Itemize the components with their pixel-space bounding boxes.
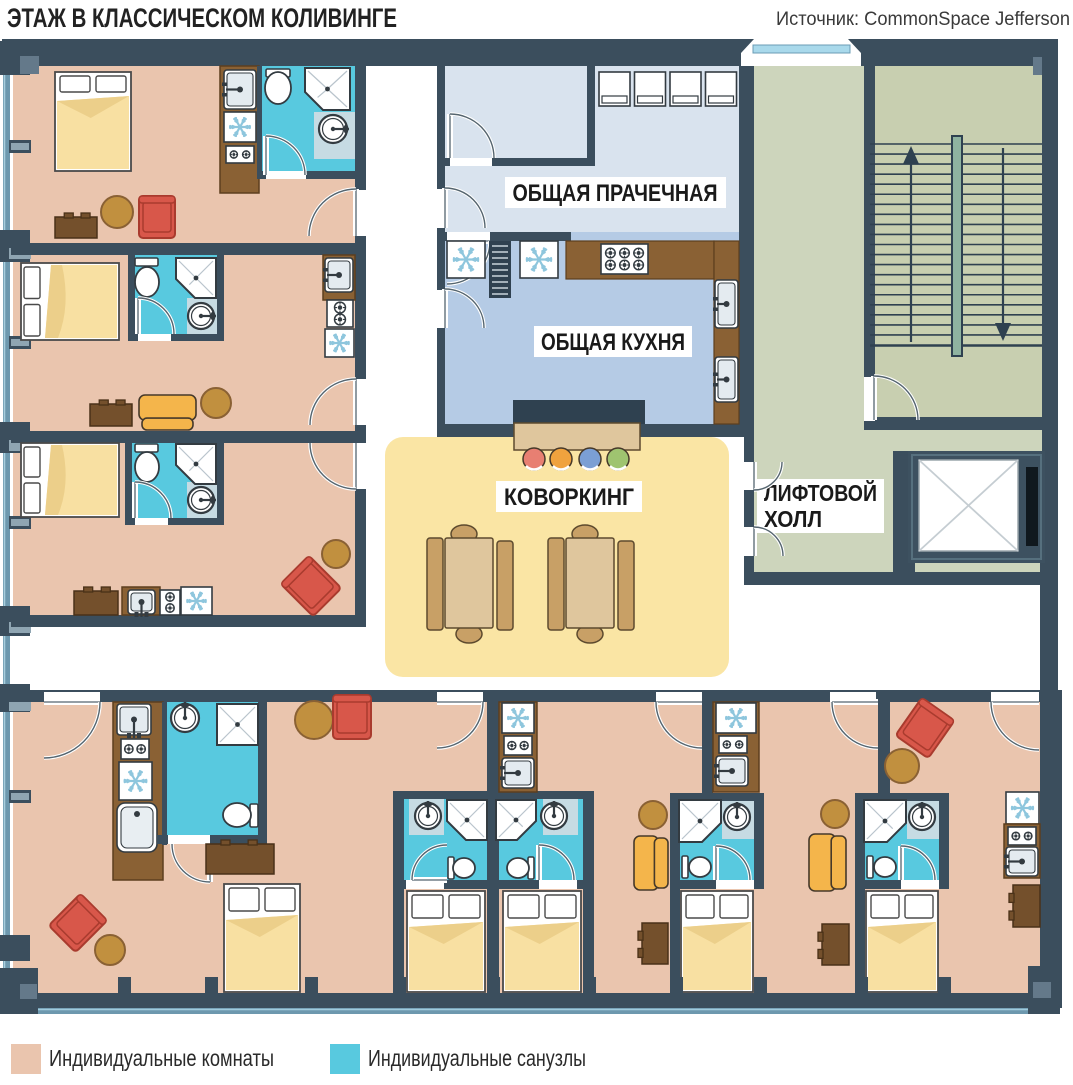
svg-text:КОВОРКИНГ: КОВОРКИНГ: [504, 484, 634, 511]
svg-text:ХОЛЛ: ХОЛЛ: [764, 506, 822, 532]
svg-text:ЭТАЖ В КЛАССИЧЕСКОМ КОЛИВИНГЕ: ЭТАЖ В КЛАССИЧЕСКОМ КОЛИВИНГЕ: [7, 3, 397, 33]
svg-text:ЛИФТОВОЙ: ЛИФТОВОЙ: [764, 479, 877, 506]
svg-text:Индивидуальные комнаты: Индивидуальные комнаты: [49, 1045, 274, 1071]
svg-text:Источник: CommonSpace Jefferso: Источник: CommonSpace Jefferson: [776, 9, 1070, 30]
svg-text:ОБЩАЯ КУХНЯ: ОБЩАЯ КУХНЯ: [541, 329, 685, 356]
svg-text:Индивидуальные санузлы: Индивидуальные санузлы: [368, 1045, 586, 1071]
svg-text:ОБЩАЯ ПРАЧЕЧНАЯ: ОБЩАЯ ПРАЧЕЧНАЯ: [513, 180, 718, 207]
